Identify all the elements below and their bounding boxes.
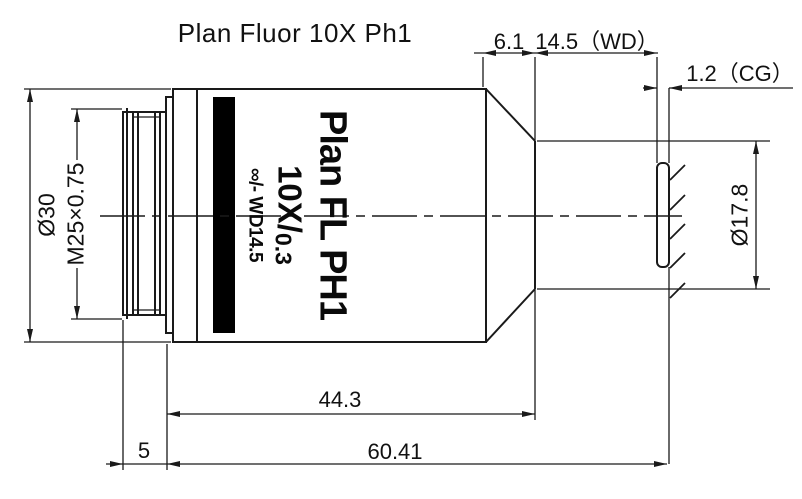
marking-tube-length-label: ∞/- WD14.5 xyxy=(243,90,267,340)
marking-series-label: Plan FL PH1 xyxy=(310,90,356,340)
dim-working-distance-label: 14.5（WD） xyxy=(535,31,658,53)
dim-front-diameter-label: Ø17.8 xyxy=(729,184,752,247)
phase-band xyxy=(213,97,235,333)
dim-body-diameter-label: Ø30 xyxy=(36,193,59,236)
dim-thread-spec-label: M25×0.75 xyxy=(65,163,88,266)
dim-body-length-label: 44.3 xyxy=(319,389,362,411)
marking-magnification-label: 10X/0.3 xyxy=(267,90,310,340)
shoulder-ring xyxy=(166,97,173,333)
objective-marking: Plan FL PH1 10X/0.3 ∞/- WD14.5 xyxy=(243,90,356,340)
hatch-marks xyxy=(670,165,685,298)
dim-thread-length-label: 5 xyxy=(138,440,150,462)
drawing-title: Plan Fluor 10X Ph1 xyxy=(178,20,412,46)
dim-cover-glass-label: 1.2（CG） xyxy=(686,63,794,85)
dim-total-length-label: 60.41 xyxy=(367,441,422,463)
taper-bottom-line xyxy=(486,289,535,342)
dim-taper-length-label: 6.1 xyxy=(494,31,525,53)
taper-top-line xyxy=(486,89,535,141)
cover-glass xyxy=(657,163,669,267)
drawing-canvas xyxy=(0,0,802,499)
technical-drawing-page: Plan Fluor 10X Ph1 6.1 14.5（WD） 1.2（CG） … xyxy=(0,0,802,499)
